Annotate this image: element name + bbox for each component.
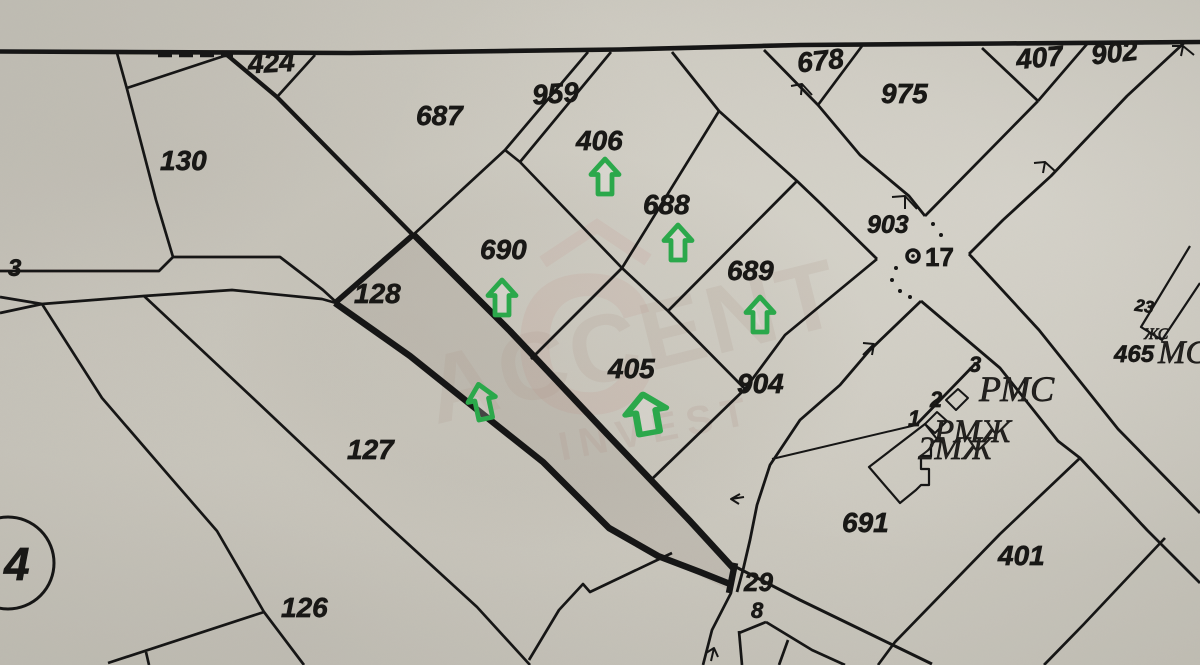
svg-text:128: 128 <box>354 278 401 309</box>
svg-text:2МЖ: 2МЖ <box>918 431 994 467</box>
svg-text:406: 406 <box>575 125 623 156</box>
svg-text:1: 1 <box>908 406 920 431</box>
svg-text:424: 424 <box>246 46 296 79</box>
svg-text:902: 902 <box>1090 35 1140 71</box>
svg-text:3: 3 <box>969 352 981 377</box>
svg-text:690: 690 <box>480 234 527 265</box>
svg-text:903: 903 <box>867 211 909 239</box>
svg-text:127: 127 <box>347 434 395 465</box>
svg-text:РМС: РМС <box>978 369 1055 409</box>
svg-text:3: 3 <box>8 255 22 282</box>
svg-text:130: 130 <box>160 145 207 176</box>
svg-text:ЖС: ЖС <box>1143 326 1169 343</box>
svg-text:23: 23 <box>1133 296 1156 318</box>
svg-text:688: 688 <box>643 189 690 220</box>
svg-text:904: 904 <box>737 368 784 399</box>
svg-text:405: 405 <box>607 353 655 384</box>
svg-text:401: 401 <box>997 540 1045 571</box>
svg-text:678: 678 <box>796 43 846 79</box>
svg-text:691: 691 <box>842 507 889 538</box>
svg-text:959: 959 <box>531 76 580 110</box>
svg-text:465: 465 <box>1113 341 1155 368</box>
svg-text:126: 126 <box>281 592 328 623</box>
svg-text:29: 29 <box>743 567 773 597</box>
svg-text:687: 687 <box>416 100 464 131</box>
svg-text:17: 17 <box>925 242 954 272</box>
svg-text:4: 4 <box>3 538 30 590</box>
svg-text:407: 407 <box>1014 40 1066 75</box>
svg-text:2: 2 <box>929 387 943 412</box>
svg-text:8: 8 <box>751 598 764 623</box>
svg-text:975: 975 <box>881 78 928 109</box>
svg-text:689: 689 <box>727 255 774 286</box>
